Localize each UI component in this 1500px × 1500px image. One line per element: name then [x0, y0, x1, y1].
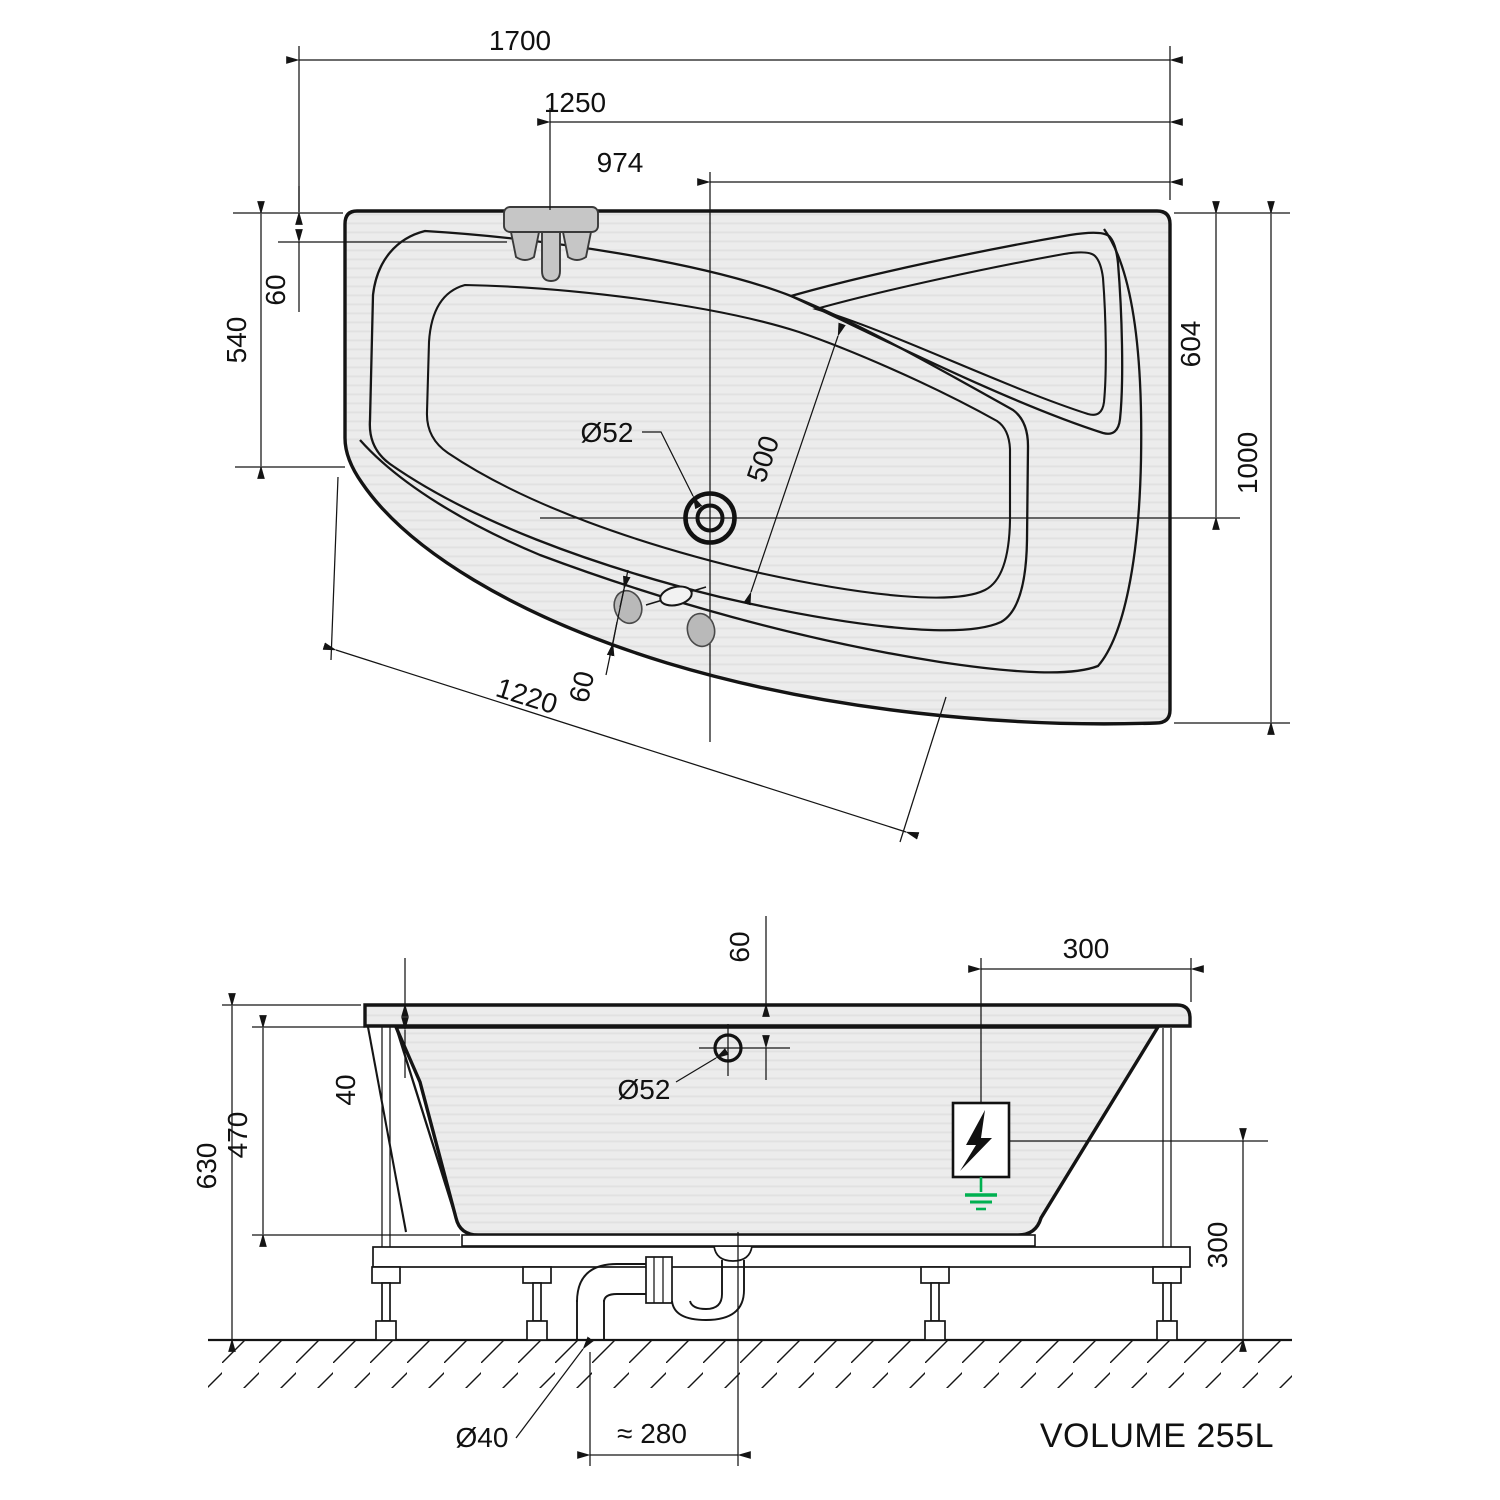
- technical-drawing-page: 1700 1250 974 60 540 604 1000: [0, 0, 1500, 1500]
- dim-overflow-offset: 60: [724, 931, 755, 962]
- dim-drain-offset-y: 604: [1175, 321, 1206, 368]
- tub-base-board: [462, 1235, 1035, 1246]
- dim-rim-width: 60: [563, 668, 600, 705]
- dim-right-end-width: 1000: [1232, 432, 1263, 494]
- dim-waste-pipe-diameter: Ø40: [456, 1422, 509, 1453]
- tub-body-side: [396, 1027, 1158, 1235]
- dim-shell-depth: 470: [222, 1112, 253, 1159]
- top-view: 1700 1250 974 60 540 604 1000: [221, 25, 1290, 842]
- dim-electric-height: 300: [1202, 1222, 1233, 1269]
- dim-overall-length: 1700: [489, 25, 551, 56]
- faucet-spout: [542, 232, 560, 281]
- side-view: 60 300 630 470 40 Ø52 300: [191, 916, 1292, 1466]
- dim-drain-diameter: Ø52: [581, 417, 634, 448]
- dim-tap-distance: 1250: [544, 87, 606, 118]
- frame-rail: [373, 1247, 1190, 1267]
- dim-rim-height: 40: [330, 1074, 361, 1105]
- faucet-handle-right: [563, 232, 591, 260]
- dim-deck-offset: 60: [260, 274, 291, 305]
- frame-feet: [372, 1267, 1181, 1340]
- floor: [208, 1340, 1292, 1388]
- faucet-handle-left: [511, 232, 539, 260]
- floor-hatching: [208, 1341, 1292, 1388]
- far-end-contour: [368, 1027, 406, 1232]
- dim-overflow-diameter: Ø52: [618, 1074, 671, 1105]
- dim-trap-offset: ≈ 280: [617, 1418, 687, 1449]
- dim-drain-offset-x: 974: [597, 147, 644, 178]
- dim-left-end-width: 540: [221, 317, 252, 364]
- siphon-union-nut: [646, 1257, 672, 1303]
- dim-electric-inset: 300: [1063, 933, 1110, 964]
- dim-overall-height: 630: [191, 1143, 222, 1190]
- faucet-body: [504, 207, 598, 232]
- dim-front-edge-length: 1220: [492, 672, 561, 720]
- bathtub-technical-drawing: 1700 1250 974 60 540 604 1000: [0, 0, 1500, 1500]
- volume-label: VOLUME 255L: [1040, 1417, 1274, 1455]
- tub-rim-side: [365, 1005, 1190, 1026]
